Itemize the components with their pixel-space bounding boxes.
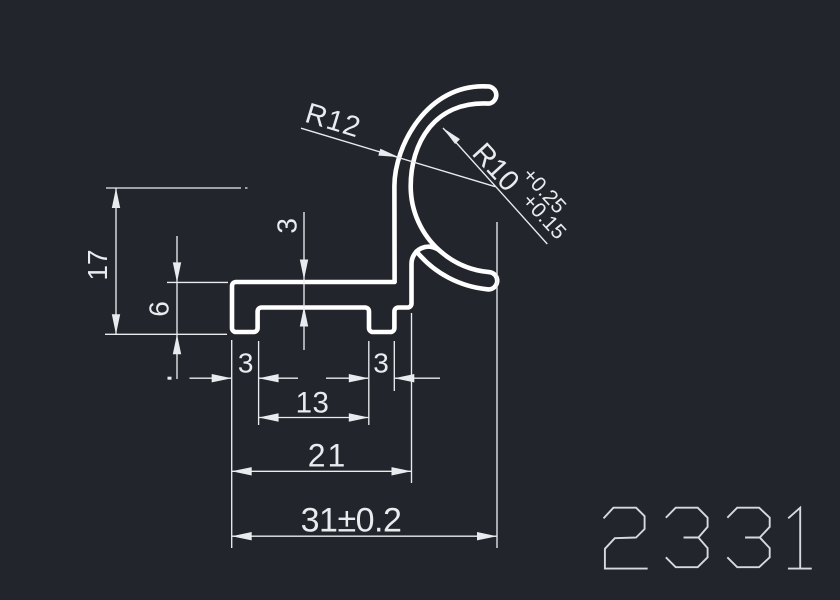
svg-text:3: 3 [373,348,389,379]
svg-text:21: 21 [308,437,348,473]
svg-text:31±0.2: 31±0.2 [301,501,402,539]
svg-text:6: 6 [144,301,175,317]
svg-text:13: 13 [296,386,330,419]
svg-text:3: 3 [238,348,254,379]
svg-text:3: 3 [272,218,303,234]
svg-text:17: 17 [82,249,113,280]
